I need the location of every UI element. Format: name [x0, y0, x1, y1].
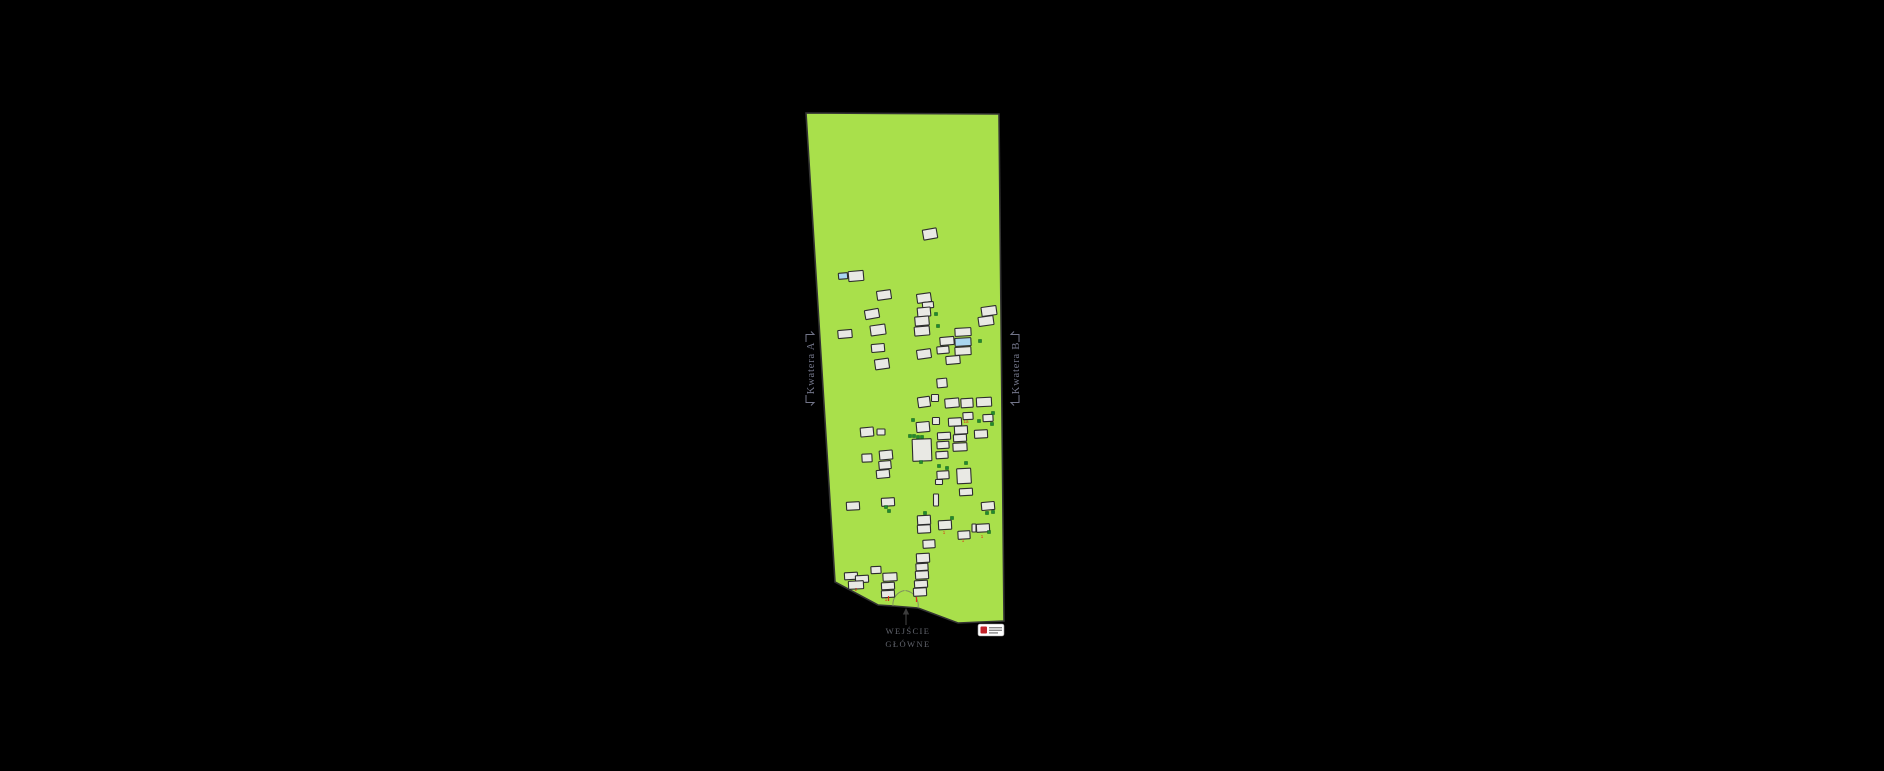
plot-rect[interactable]: [937, 432, 950, 440]
map-canvas: 1a11121 Kwatera A Kwatera B WEJŚCIE GŁÓW…: [0, 0, 1884, 771]
plot-rect[interactable]: [914, 326, 930, 336]
plot-rect[interactable]: [976, 397, 991, 407]
plot-rect[interactable]: [937, 441, 949, 449]
tree-marker: [920, 461, 923, 464]
cemetery-grounds: [806, 113, 1004, 623]
plot-rect[interactable]: [874, 358, 889, 370]
plot-rect[interactable]: [915, 571, 928, 580]
tree-marker: [937, 325, 940, 328]
gate-post-tick: [888, 596, 889, 601]
plot-rect[interactable]: [981, 501, 995, 510]
plot-rect[interactable]: [934, 494, 939, 506]
plot-rect[interactable]: [957, 468, 972, 484]
quarter-a-bracket-bottom: [806, 395, 814, 406]
tree-marker: [988, 531, 991, 534]
plot-rect[interactable]: [954, 426, 967, 435]
plot-number-label: 1a: [963, 419, 969, 424]
plot-rect[interactable]: [932, 395, 939, 402]
plot-rect[interactable]: [916, 421, 930, 432]
cemetery-map: 1a11121 Kwatera A Kwatera B WEJŚCIE GŁÓW…: [0, 0, 1884, 771]
entrance-arrow-icon: [903, 608, 909, 615]
watermark-text-line: [989, 627, 1002, 628]
plot-rect[interactable]: [922, 228, 938, 240]
watermark-text-line: [989, 630, 1002, 631]
plot-rect[interactable]: [917, 307, 931, 317]
plot-rect[interactable]: [914, 580, 927, 588]
gate-post-tick: [916, 597, 917, 602]
plot-rect[interactable]: [937, 471, 949, 480]
watermark-text-line: [989, 632, 998, 633]
plot-rect[interactable]: [917, 396, 930, 408]
entrance-label-line1: WEJŚCIE: [886, 626, 931, 636]
plot-rect[interactable]: [945, 398, 960, 408]
plot-rect[interactable]: [955, 328, 971, 337]
entrance-label-line2: GŁÓWNE: [885, 639, 930, 649]
plot-rect[interactable]: [915, 316, 930, 326]
plot-rect[interactable]: [936, 451, 948, 459]
tree-marker: [935, 313, 938, 316]
plot-rect[interactable]: [953, 434, 966, 442]
plot-rect[interactable]: [848, 270, 864, 281]
tree-marker: [938, 465, 941, 468]
plot-rect[interactable]: [953, 443, 967, 452]
tree-marker: [951, 517, 954, 520]
quarter-b-bracket-bottom: [1011, 395, 1019, 406]
plot-rect[interactable]: [860, 427, 874, 437]
tree-marker: [965, 462, 968, 465]
plot-rect[interactable]: [961, 398, 973, 408]
plot-rect[interactable]: [916, 563, 928, 571]
plot-rect[interactable]: [883, 573, 897, 582]
plot-rect[interactable]: [838, 329, 853, 338]
tree-marker: [946, 467, 949, 470]
tree-marker: [991, 423, 994, 426]
tree-marker: [979, 340, 982, 343]
plot-rect[interactable]: [879, 450, 893, 460]
plot-rect[interactable]: [933, 418, 940, 425]
plot-rect[interactable]: [864, 308, 879, 319]
plot-rect[interactable]: [916, 553, 929, 563]
plot-rect[interactable]: [870, 324, 886, 336]
tree-marker: [909, 435, 912, 438]
plot-rect[interactable]: [876, 290, 891, 301]
tree-marker: [924, 512, 927, 515]
plot-rect[interactable]: [948, 418, 961, 427]
tree-marker: [921, 436, 924, 439]
plot-rect[interactable]: [955, 347, 971, 356]
plot-rect[interactable]: [912, 439, 932, 462]
plot-rect[interactable]: [879, 460, 892, 469]
tree-marker: [992, 412, 995, 415]
plot-rect[interactable]: [881, 498, 894, 507]
plot-rect[interactable]: [946, 355, 961, 364]
tree-marker: [992, 511, 995, 514]
plot-rect[interactable]: [913, 588, 926, 597]
plot-rect[interactable]: [981, 306, 997, 317]
plot-rect[interactable]: [917, 515, 930, 525]
quarter-b-label: Kwatera B: [1011, 342, 1022, 394]
tree-marker: [986, 512, 989, 515]
quarter-a-bracket-top: [806, 332, 814, 343]
plot-rect[interactable]: [871, 343, 885, 352]
watermark-logo[interactable]: [978, 624, 1004, 636]
plot-rect[interactable]: [881, 582, 894, 590]
plot-rect[interactable]: [959, 488, 972, 496]
red-logo-mark: [981, 627, 988, 634]
plot-rect[interactable]: [838, 273, 847, 280]
plot-rect[interactable]: [923, 540, 935, 549]
plot-rect[interactable]: [983, 414, 993, 422]
plot-rect[interactable]: [862, 454, 872, 463]
tree-marker: [917, 436, 920, 439]
plot-rect[interactable]: [955, 338, 971, 347]
tree-marker: [912, 419, 915, 422]
plot-rect[interactable]: [871, 566, 881, 574]
plot-rect[interactable]: [974, 430, 987, 439]
quarter-b-bracket-top: [1011, 332, 1019, 343]
tree-marker: [885, 506, 888, 509]
tree-marker: [913, 435, 916, 438]
tree-marker: [978, 420, 981, 423]
quarter-a-label: Kwatera A: [806, 342, 817, 394]
plot-rect[interactable]: [876, 469, 890, 478]
plot-rect[interactable]: [916, 349, 931, 360]
plot-rect[interactable]: [917, 525, 930, 534]
plot-rect[interactable]: [937, 378, 948, 388]
plot-rect[interactable]: [940, 336, 955, 345]
plot-rect[interactable]: [936, 480, 943, 485]
plot-rect[interactable]: [972, 524, 976, 532]
tree-marker: [888, 510, 891, 513]
plot-rect[interactable]: [846, 502, 859, 511]
plot-rect[interactable]: [978, 316, 994, 327]
plot-rect[interactable]: [938, 520, 951, 530]
plot-rect[interactable]: [877, 429, 885, 435]
plot-rect[interactable]: [937, 346, 950, 354]
